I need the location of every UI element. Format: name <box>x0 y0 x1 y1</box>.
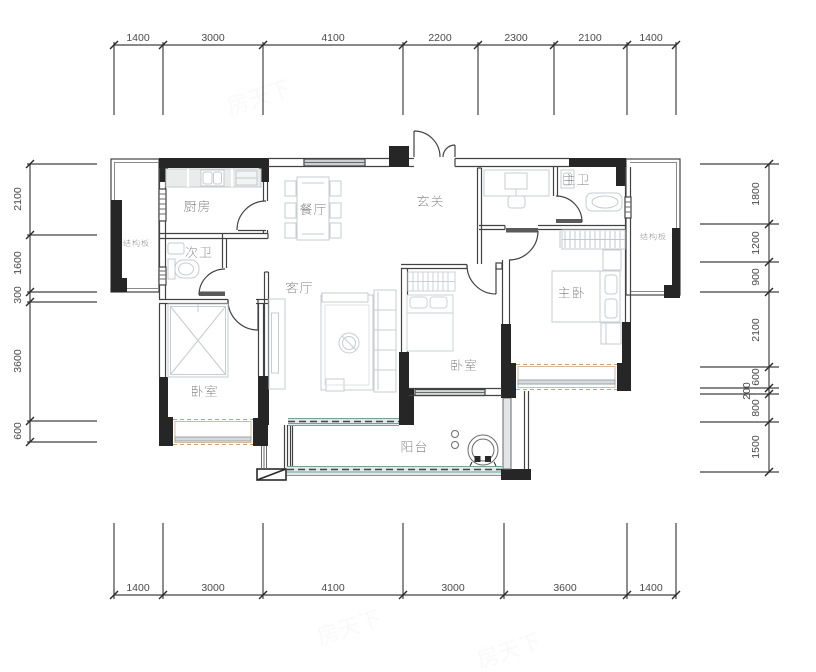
svg-text:3600: 3600 <box>12 349 24 373</box>
svg-text:1400: 1400 <box>126 582 150 594</box>
svg-text:1400: 1400 <box>126 32 150 44</box>
svg-text:600: 600 <box>12 422 24 440</box>
svg-text:800: 800 <box>750 399 762 417</box>
svg-text:2100: 2100 <box>12 187 24 211</box>
svg-text:1200: 1200 <box>750 231 762 255</box>
svg-text:2100: 2100 <box>578 32 602 44</box>
svg-text:300: 300 <box>12 286 24 304</box>
svg-text:4100: 4100 <box>321 582 345 594</box>
svg-text:1800: 1800 <box>750 182 762 206</box>
svg-text:3600: 3600 <box>553 582 577 594</box>
svg-text:3000: 3000 <box>201 582 225 594</box>
svg-text:2200: 2200 <box>428 32 452 44</box>
svg-text:1400: 1400 <box>639 32 663 44</box>
svg-text:3000: 3000 <box>441 582 465 594</box>
svg-text:1600: 1600 <box>12 251 24 275</box>
svg-text:1400: 1400 <box>639 582 663 594</box>
svg-text:4100: 4100 <box>321 32 345 44</box>
svg-text:2100: 2100 <box>750 318 762 342</box>
svg-text:200: 200 <box>741 382 753 400</box>
svg-text:3000: 3000 <box>201 32 225 44</box>
svg-text:900: 900 <box>750 268 762 286</box>
svg-text:2300: 2300 <box>504 32 528 44</box>
svg-text:1500: 1500 <box>750 435 762 459</box>
